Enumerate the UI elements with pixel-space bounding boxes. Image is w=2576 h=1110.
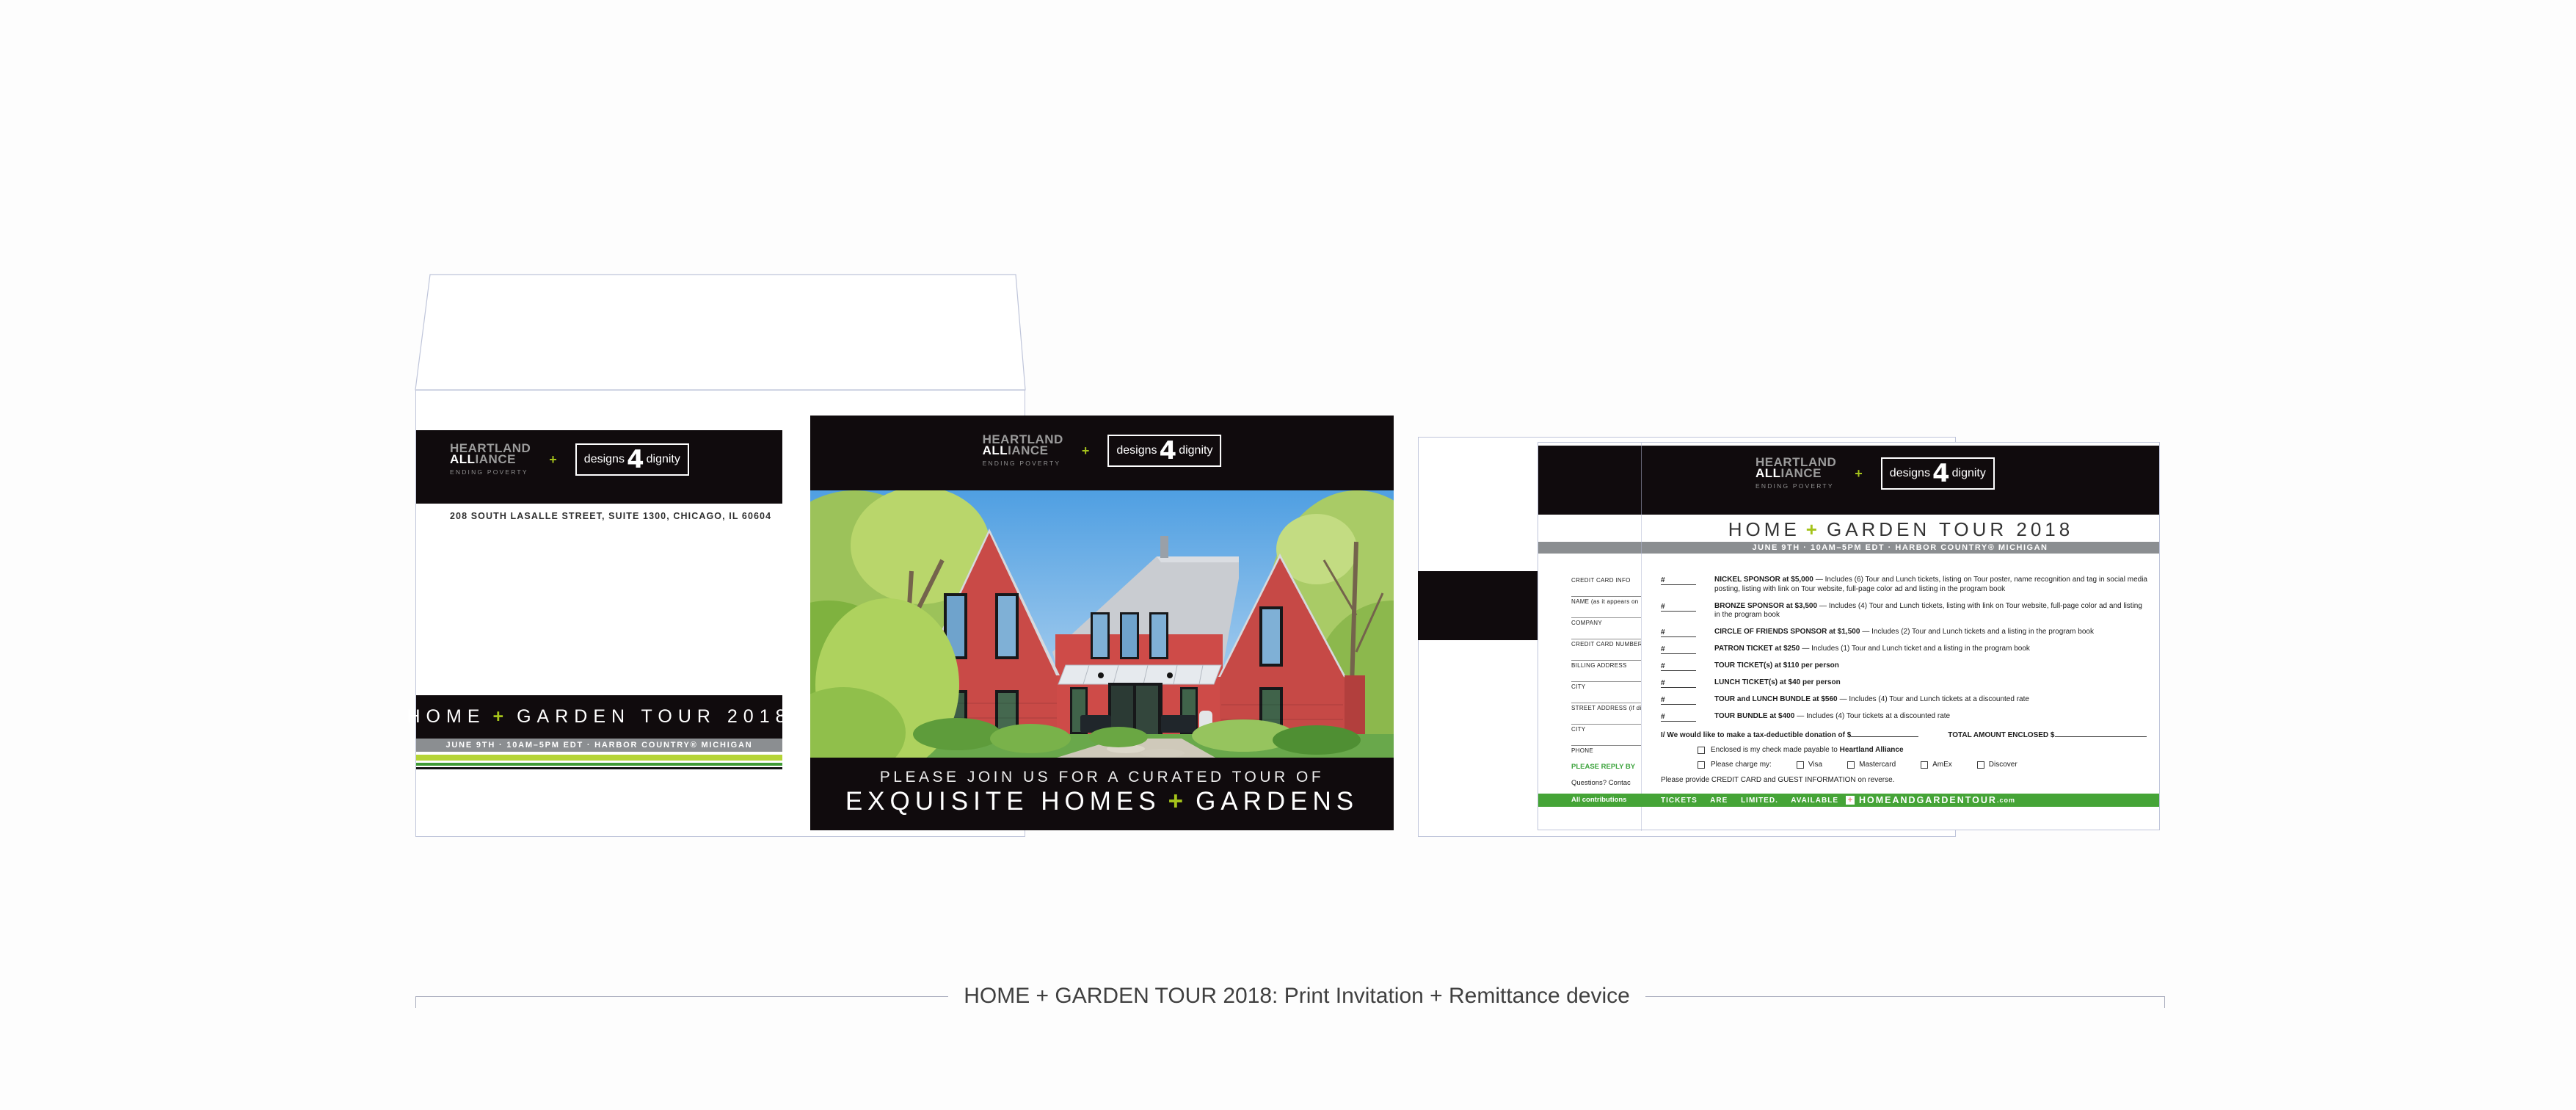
order-line-item: #NICKEL SPONSOR at $5,000— Includes (6) … xyxy=(1661,576,2147,594)
invitation-photo xyxy=(810,490,1394,758)
envelope-header-band: HEARTLAND ALLIANCE ENDING POVERTY + desi… xyxy=(416,430,782,504)
return-address: 208 SOUTH LASALLE STREET, SUITE 1300, CH… xyxy=(450,511,771,521)
envelope-flap xyxy=(407,267,1033,393)
caption-rule-left-tick xyxy=(415,996,416,1008)
stub-field: BILLING ADDRESS xyxy=(1571,661,1641,682)
card-option: Mastercard xyxy=(1847,761,1896,769)
roof-vent xyxy=(1160,536,1168,558)
stripe-black xyxy=(416,767,782,769)
invitation-card: HEARTLAND ALLIANCE ENDING POVERTY + desi… xyxy=(810,416,1394,830)
quantity-blank: # xyxy=(1661,628,1696,637)
plus-icon: + xyxy=(1855,466,1863,482)
stub-field: CITY xyxy=(1571,725,1641,746)
brand-name-line2: ALLIANCE xyxy=(450,454,531,465)
metal-awning xyxy=(1058,665,1221,684)
card-option: Discover xyxy=(1977,761,2017,769)
artboard: HEARTLAND ALLIANCE ENDING POVERTY + desi… xyxy=(0,0,2576,1110)
checkbox-icon xyxy=(1847,761,1855,769)
quantity-blank: # xyxy=(1661,603,1696,612)
order-line-item: #PATRON TICKET at $250— Includes (1) Tou… xyxy=(1661,645,2147,654)
charge-label: Please charge my: xyxy=(1711,761,1772,769)
stub-field: CITY xyxy=(1571,682,1641,703)
tour-date-line: JUNE 9TH · 10AM–5PM EDT · HARBOR COUNTRY… xyxy=(446,741,753,750)
caption-rule-left xyxy=(415,996,948,997)
designs4dignity-logo: designs 4 dignity xyxy=(1107,435,1221,467)
payee-name: Heartland Alliance xyxy=(1840,746,1904,754)
checkbox-icon xyxy=(1698,761,1705,769)
quantity-blank: # xyxy=(1661,713,1696,722)
quantity-blank: # xyxy=(1661,696,1696,705)
tour-title: HOME+GARDEN TOUR 2018 xyxy=(407,706,792,728)
order-items: #NICKEL SPONSOR at $5,000— Includes (6) … xyxy=(1661,576,2147,784)
stripe-dark-green xyxy=(416,763,782,766)
plus-icon: + xyxy=(549,452,557,468)
plus-icon: + xyxy=(1806,518,1821,540)
donation-line: I/ We would like to make a tax-deductibl… xyxy=(1661,729,2147,739)
order-line-item: #TOUR BUNDLE at $400— Includes (4) Tour … xyxy=(1661,712,2147,722)
card-option: Visa xyxy=(1797,761,1822,769)
caption-rule-right xyxy=(1645,996,2165,997)
caption: HOME + GARDEN TOUR 2018: Print Invitatio… xyxy=(948,984,1645,1009)
stub-field: CREDIT CARD NUMBER xyxy=(1571,639,1641,661)
heartland-alliance-logo: HEARTLAND ALLIANCE ENDING POVERTY xyxy=(450,443,531,476)
quantity-blank: # xyxy=(1661,576,1696,585)
remittance-form: HEARTLAND ALLIANCE ENDING POVERTY + desi… xyxy=(1538,442,2160,830)
reply-by-note: PLEASE REPLY BY xyxy=(1571,763,1641,771)
designs4dignity-logo: designs 4 dignity xyxy=(1881,457,1995,490)
reverse-note: Please provide CREDIT CARD and GUEST INF… xyxy=(1661,776,2147,784)
designs4dignity-logo: designs 4 dignity xyxy=(575,443,689,476)
stub-field: STREET ADDRESS (if dif xyxy=(1571,703,1641,725)
caption-rule-right-tick xyxy=(2164,996,2165,1008)
checkbox-icon xyxy=(1698,747,1705,754)
invitation-kicker: PLEASE JOIN US FOR A CURATED TOUR OF xyxy=(810,769,1394,786)
total-amount-blank xyxy=(2055,729,2147,737)
card-option: AmEx xyxy=(1921,761,1952,769)
checkbox-icon xyxy=(1921,761,1928,769)
quantity-blank: # xyxy=(1661,662,1696,671)
plus-icon: + xyxy=(1168,787,1188,816)
center-windows xyxy=(1091,612,1168,659)
tickets-bar: All contributions TICKETS ARE LIMITED. A… xyxy=(1538,794,2159,807)
tickets-bar-text: TICKETS ARE LIMITED. AVAILABLE + HOMEAND… xyxy=(1661,795,2015,805)
questions-note: Questions? Contac xyxy=(1571,779,1641,787)
form-title: HOME+GARDEN TOUR 2018 xyxy=(1641,518,2161,541)
charge-card-row: Please charge my: Visa Mastercard AmEx D… xyxy=(1661,761,2147,769)
stripe-light-green xyxy=(416,755,782,761)
envelope-date-band: JUNE 9TH · 10AM–5PM EDT · HARBOR COUNTRY… xyxy=(416,739,782,752)
plus-icon: + xyxy=(1082,443,1090,459)
invitation-headline: EXQUISITE HOMES+GARDENS xyxy=(810,787,1394,816)
quantity-blank: # xyxy=(1661,645,1696,654)
contributions-note: All contributions xyxy=(1571,796,1641,804)
form-date-band: JUNE 9TH · 10AM–5PM EDT · HARBOR COUNTRY… xyxy=(1538,542,2159,554)
reply-envelope-black-band xyxy=(1418,571,1538,640)
check-enclosed-row: Enclosed is my check made payable to Hea… xyxy=(1661,746,2147,754)
heartland-alliance-logo: HEARTLAND ALLIANCE ENDING POVERTY xyxy=(1755,457,1836,490)
order-line-item: #LUNCH TICKET(s) at $40 per person xyxy=(1661,678,2147,688)
donation-amount-blank xyxy=(1851,729,1918,737)
checkbox-icon xyxy=(1797,761,1804,769)
brand-lockup: HEARTLAND ALLIANCE ENDING POVERTY + desi… xyxy=(1755,457,1995,490)
checkbox-icon xyxy=(1977,761,1984,769)
stub-field: COMPANY xyxy=(1571,618,1641,639)
form-stub: CREDIT CARD INFO NAME (as it appears on … xyxy=(1571,576,1641,767)
brand-tagline: ENDING POVERTY xyxy=(450,468,531,476)
brand-lockup: HEARTLAND ALLIANCE ENDING POVERTY + desi… xyxy=(450,443,689,476)
perforation-line xyxy=(1641,443,1642,831)
brand-lockup: HEARTLAND ALLIANCE ENDING POVERTY + desi… xyxy=(983,435,1222,467)
order-line-item: #BRONZE SPONSOR at $3,500— Includes (4) … xyxy=(1661,602,2147,620)
form-header-band: HEARTLAND ALLIANCE ENDING POVERTY + desi… xyxy=(1538,446,2159,515)
order-line-item: #TOUR TICKET(s) at $110 per person xyxy=(1661,661,2147,671)
stub-field: NAME (as it appears on xyxy=(1571,597,1641,618)
plus-box-icon: + xyxy=(1846,796,1855,805)
envelope-tour-band: HOME+GARDEN TOUR 2018 xyxy=(416,695,782,739)
heartland-alliance-logo: HEARTLAND ALLIANCE ENDING POVERTY xyxy=(983,435,1063,467)
order-line-item: #TOUR and LUNCH BUNDLE at $560— Includes… xyxy=(1661,695,2147,705)
stub-field: CREDIT CARD INFO xyxy=(1571,576,1641,597)
total-enclosed-label: TOTAL AMOUNT ENCLOSED $ xyxy=(1948,731,2054,739)
tour-date-line: JUNE 9TH · 10AM–5PM EDT · HARBOR COUNTRY… xyxy=(1753,543,2048,552)
quantity-blank: # xyxy=(1661,679,1696,688)
plus-icon: + xyxy=(493,706,510,727)
tour-website: HOMEANDGARDENTOUR xyxy=(1859,795,1997,805)
order-line-item: #CIRCLE OF FRIENDS SPONSOR at $1,500— In… xyxy=(1661,628,2147,637)
